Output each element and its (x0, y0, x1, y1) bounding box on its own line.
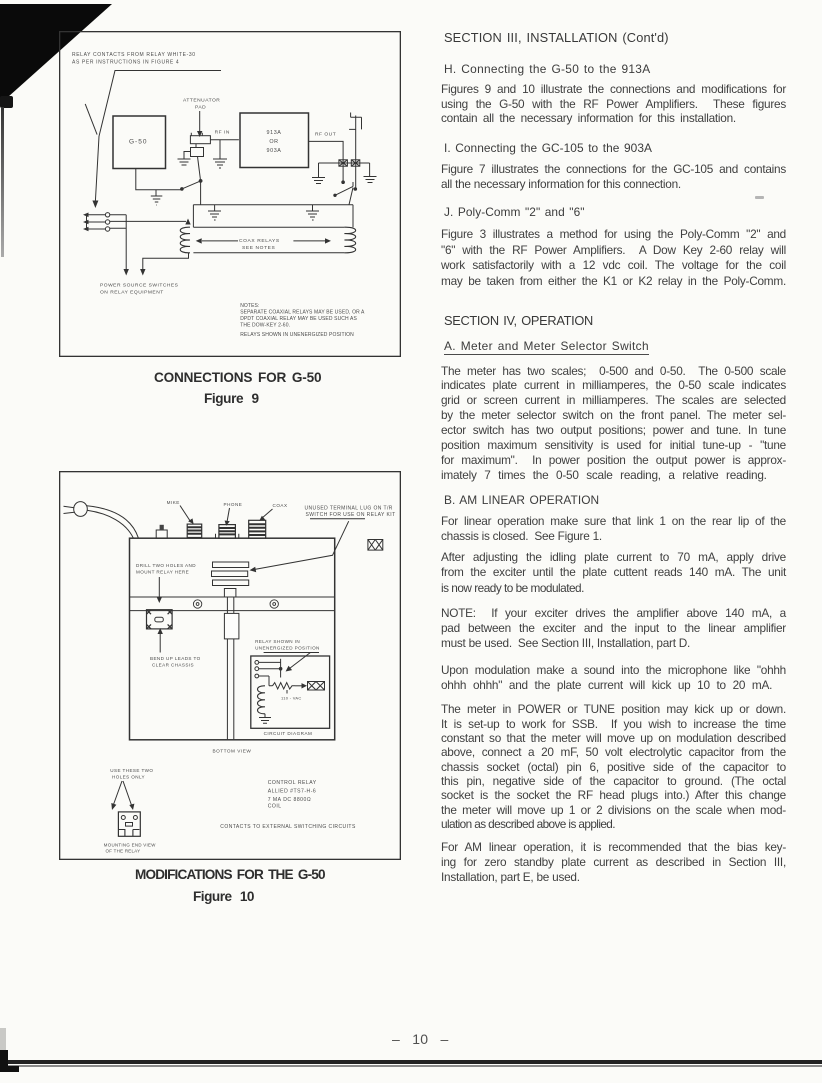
svg-text:ATTENUATOR: ATTENUATOR (183, 98, 220, 104)
svg-text:CONTROL RELAY: CONTROL RELAY (268, 780, 317, 786)
svg-text:G-50: G-50 (129, 139, 147, 146)
svg-text:903A: 903A (267, 148, 282, 154)
svg-text:RELAY CONTACTS FROM RELAY WHIT: RELAY CONTACTS FROM RELAY WHITE-30 (72, 52, 196, 58)
svg-text:RELAYS SHOWN IN UNENERGIZED PO: RELAYS SHOWN IN UNENERGIZED POSITION (240, 332, 354, 338)
svg-text:CONTACTS TO EXTERNAL SWITCHING: CONTACTS TO EXTERNAL SWITCHING CIRCUITS (220, 824, 356, 830)
svg-text:MIKE: MIKE (167, 500, 180, 505)
svg-text:COIL: COIL (268, 804, 282, 810)
svg-text:SEE NOTES: SEE NOTES (242, 245, 276, 251)
svg-text:CIRCUIT DIAGRAM: CIRCUIT DIAGRAM (264, 731, 313, 736)
svg-text:RELAY SHOWN IN: RELAY SHOWN IN (255, 639, 300, 644)
svg-text:DRILL TWO HOLES AND: DRILL TWO HOLES AND (136, 563, 196, 568)
svg-text:MOUNT RELAY HERE: MOUNT RELAY HERE (136, 570, 189, 575)
svg-text:THE DOW-KEY 2-60.: THE DOW-KEY 2-60. (240, 323, 290, 329)
svg-text:CLEAR CHASSIS: CLEAR CHASSIS (152, 663, 194, 668)
svg-text:COAX: COAX (273, 503, 288, 508)
svg-text:913A: 913A (267, 130, 282, 136)
svg-text:PHONE: PHONE (224, 502, 243, 507)
svg-text:NOTES:: NOTES: (240, 303, 259, 309)
svg-text:PAD: PAD (195, 105, 206, 111)
svg-text:AS PER INSTRUCTIONS IN FIGURE: AS PER INSTRUCTIONS IN FIGURE 4 (72, 60, 179, 66)
svg-text:UNUSED TERMINAL LUG ON T/R: UNUSED TERMINAL LUG ON T/R (305, 506, 393, 512)
svg-text:BEND UP LEADS TO: BEND UP LEADS TO (150, 656, 201, 661)
svg-text:DPDT COAXIAL RELAY MAY BE USED: DPDT COAXIAL RELAY MAY BE USED SUCH AS (240, 316, 357, 322)
svg-text:COAX RELAYS: COAX RELAYS (239, 238, 280, 244)
svg-text:HOLES ONLY: HOLES ONLY (112, 775, 145, 780)
svg-text:ON RELAY EQUIPMENT: ON RELAY EQUIPMENT (100, 290, 164, 296)
svg-text:SWITCH FOR USE ON RELAY KIT: SWITCH FOR USE ON RELAY KIT (306, 512, 396, 518)
svg-text:POWER SOURCE SWITCHES: POWER SOURCE SWITCHES (100, 283, 179, 289)
svg-text:110 - VAC: 110 - VAC (281, 696, 302, 701)
svg-text:RF OUT: RF OUT (315, 132, 336, 138)
svg-text:7 MA DC 8800Ω: 7 MA DC 8800Ω (268, 797, 311, 803)
svg-text:USE THESE TWO: USE THESE TWO (110, 768, 153, 773)
svg-text:UNENERGIZED POSITION: UNENERGIZED POSITION (255, 646, 320, 651)
svg-text:ALLIED #TS7-H-6: ALLIED #TS7-H-6 (268, 789, 317, 795)
svg-text:BOTTOM VIEW: BOTTOM VIEW (213, 748, 252, 753)
svg-text:MOUNTING END VIEW: MOUNTING END VIEW (104, 842, 156, 847)
svg-text:OF THE RELAY: OF THE RELAY (106, 848, 141, 853)
svg-text:OR: OR (269, 139, 278, 145)
svg-text:RF IN: RF IN (215, 130, 230, 136)
svg-text:SEPARATE COAXIAL RELAYS MAY BE: SEPARATE COAXIAL RELAYS MAY BE USED, OR … (240, 310, 365, 316)
